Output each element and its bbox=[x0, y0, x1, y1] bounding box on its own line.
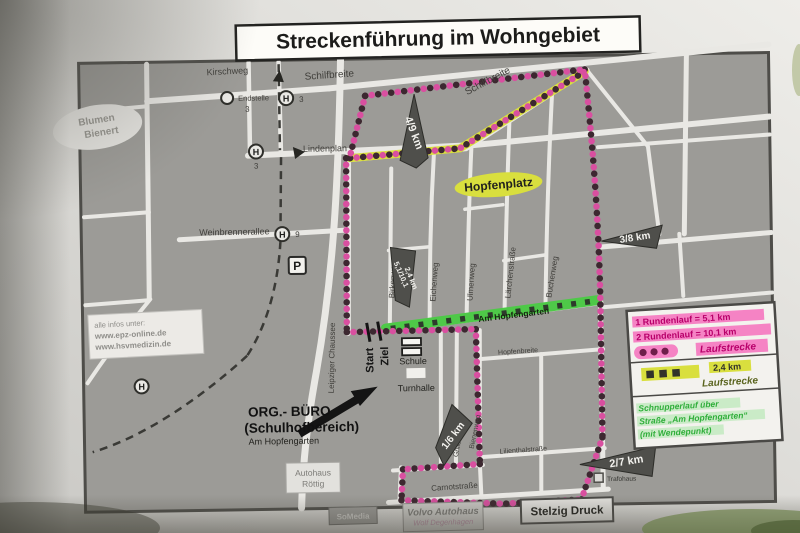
autohaus-line1: Autohaus bbox=[295, 467, 331, 478]
title-banner: Streckenführung im Wohngebiet bbox=[236, 16, 641, 60]
org-buero-line1: ORG.- BÜRO bbox=[248, 403, 331, 419]
start-label: Start bbox=[364, 347, 376, 373]
tram-line-9: 9 bbox=[295, 230, 300, 239]
street-label-weinbrennerallee: Weinbrennerallee bbox=[199, 226, 270, 237]
tram-stop-h: H bbox=[283, 94, 290, 104]
school-building-icon bbox=[402, 348, 421, 355]
legend-yellow-square-icon bbox=[672, 369, 680, 377]
org-buero-line2: (Schulhofbereich) bbox=[244, 419, 359, 436]
legend-yellow-distance: 2,4 km bbox=[713, 361, 742, 373]
tram-line-3: 3 bbox=[299, 95, 304, 104]
vignette-left bbox=[0, 0, 70, 533]
autohaus-line2: Röttig bbox=[302, 479, 325, 489]
parking-sign: P bbox=[289, 257, 306, 274]
trafohaus-icon bbox=[594, 473, 603, 482]
turnhalle-building-icon bbox=[406, 368, 425, 378]
map-canvas: Kirschweg Schilfbreite Schilfbreite Lind… bbox=[0, 0, 800, 533]
turnhalle-label: Turnhalle bbox=[398, 383, 435, 394]
school-building-icon bbox=[402, 338, 421, 345]
trafohaus-label: Trafohaus bbox=[607, 476, 637, 483]
legend-yellow-square-icon bbox=[659, 370, 667, 378]
tram-stop-h: H bbox=[279, 230, 286, 240]
org-buero-line3: Am Hopfengarten bbox=[248, 436, 319, 447]
parking-letter: P bbox=[293, 259, 301, 273]
legend: 1 Rundenlauf = 5,1 km 2 Rundenlauf = 10,… bbox=[627, 302, 783, 449]
ziel-label: Ziel bbox=[379, 347, 391, 366]
info-box: alle infos unter: www.epz-online.de www.… bbox=[88, 309, 204, 359]
autohaus-roettig: Autohaus Röttig bbox=[286, 462, 340, 493]
street-label-leipziger-chaussee: Leipziger Chaussee bbox=[327, 322, 337, 393]
schule-label: Schule bbox=[399, 356, 427, 366]
tram-stop-h: H bbox=[138, 382, 145, 392]
photo-of-route-map: Kirschweg Schilfbreite Schilfbreite Lind… bbox=[0, 0, 800, 533]
street-label-lindenplan: Lindenplan bbox=[303, 143, 347, 154]
legend-yellow-square-icon bbox=[646, 370, 654, 378]
